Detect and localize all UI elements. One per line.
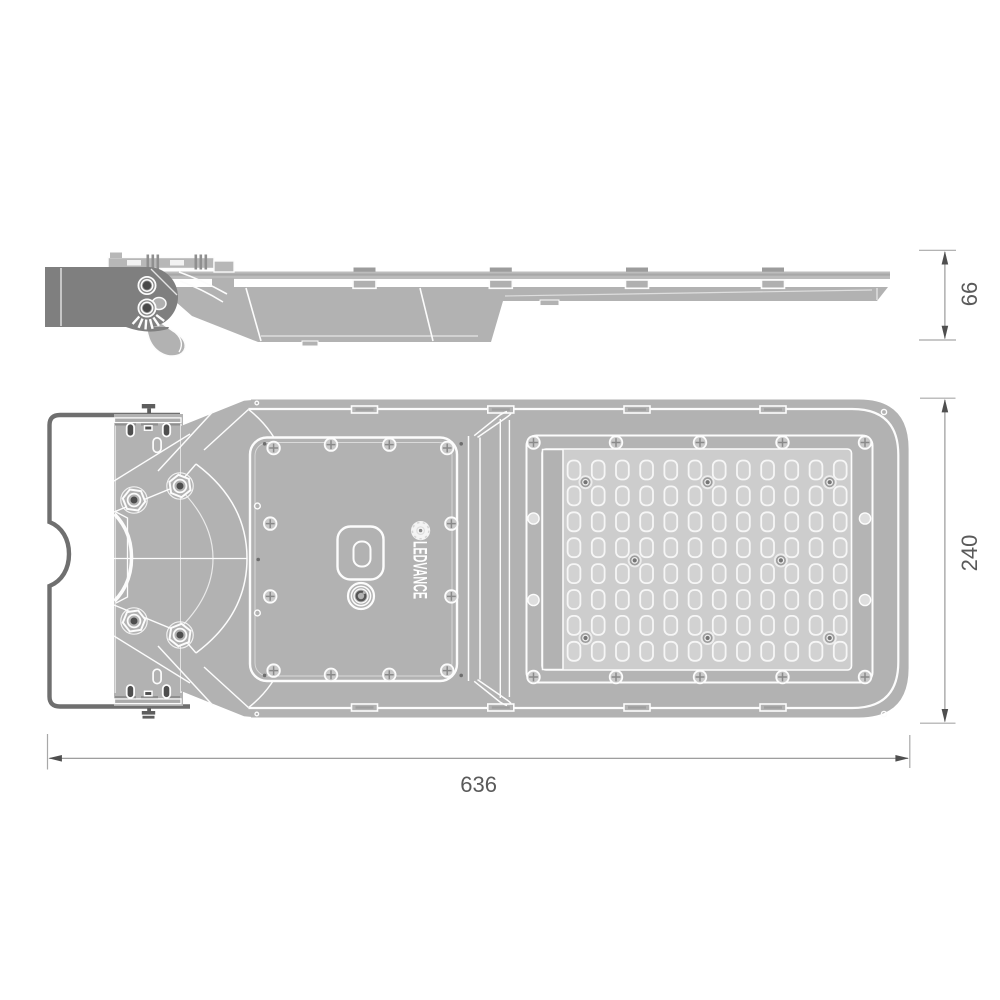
svg-text:LEDVANCE: LEDVANCE [409,541,430,599]
svg-text:636: 636 [460,772,497,797]
svg-text:66: 66 [957,282,982,306]
svg-text:240: 240 [957,535,982,572]
